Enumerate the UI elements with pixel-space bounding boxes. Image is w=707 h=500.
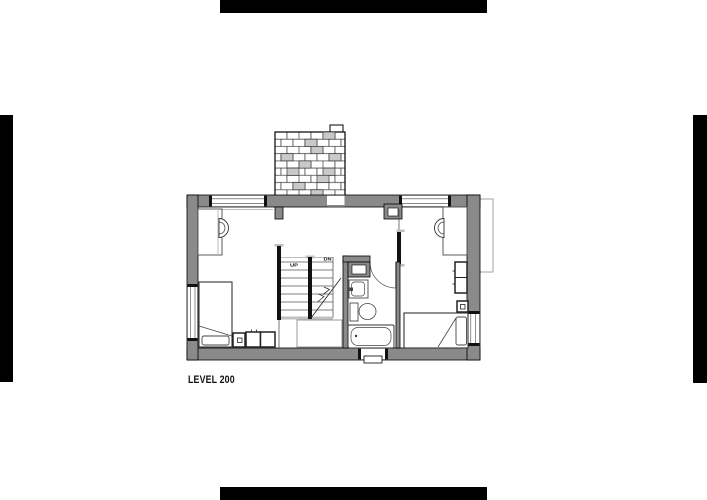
side-table-left [233, 333, 245, 347]
stair-direction-arrow [311, 278, 341, 318]
floor-plan-drawing: UP DN [0, 0, 707, 500]
wall-bathroom-left [343, 256, 348, 348]
bathroom [348, 262, 396, 348]
wall-bottom [187, 348, 480, 360]
stairwell-opening [297, 320, 342, 347]
stair-up-label: UP [290, 263, 298, 268]
staircase: UP DN [281, 256, 342, 348]
opening-below-chimney [327, 196, 345, 207]
shelf-unit-right [453, 262, 468, 293]
outlet-box-right [457, 301, 468, 312]
stair-treads [281, 262, 333, 310]
wall-bathroom-top [343, 256, 370, 262]
bed-right [404, 313, 468, 348]
window-left-wall [188, 284, 198, 341]
pillow-left [202, 336, 229, 345]
stair-down-label: DN [324, 257, 333, 262]
bathroom-vanity [348, 262, 370, 277]
wall-left-bedroom-stair [277, 246, 281, 320]
toilet [350, 303, 376, 321]
bathtub [348, 325, 394, 348]
bed-left [199, 282, 232, 347]
desk-chair-right [435, 219, 445, 238]
exterior-deck-outline [479, 199, 493, 272]
bedroom-left [198, 209, 275, 347]
desk-right [443, 207, 467, 255]
pillow-right [456, 317, 467, 345]
stools-left [246, 330, 275, 348]
window-top-right [399, 196, 451, 207]
drawing-sheet: UP DN [0, 0, 707, 500]
window-right-wall [468, 311, 480, 346]
window-bay-bottom [364, 356, 382, 363]
wall-right-bedroom-hall [397, 232, 401, 265]
wall-stub-left-bedroom [275, 207, 283, 219]
window-bottom-wall [358, 349, 388, 363]
bedroom-right [404, 207, 468, 348]
bathroom-sink [349, 280, 368, 298]
level-label: LEVEL 200 [188, 374, 235, 386]
window-top-left [209, 196, 267, 207]
bathroom-door [370, 262, 396, 288]
desk-chair-left [219, 219, 229, 238]
chimney [275, 125, 345, 197]
chimney-cap [330, 125, 343, 132]
stair-stringer [308, 257, 312, 320]
